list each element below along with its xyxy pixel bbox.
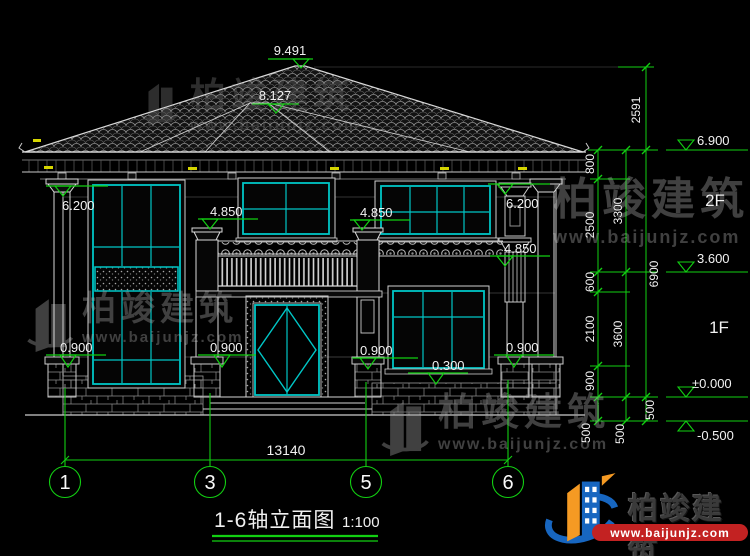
drawing-title: 1-6轴立面图 1:100 xyxy=(212,509,380,541)
dim-500-b: 500 xyxy=(613,424,627,444)
dim-6900: 6900 xyxy=(647,260,661,287)
company-site-banner: www.baijunjz.com xyxy=(592,524,748,541)
ridge-level: 9.491 xyxy=(274,43,307,58)
eave-tip-left xyxy=(19,143,25,152)
level-zero: ±0.000 xyxy=(692,376,732,391)
window-2f-center xyxy=(236,178,337,242)
drawing-canvas[interactable]: 9.491 8.127 6.200 6.200 4.850 4.850 4.85… xyxy=(0,0,750,556)
level-base-3: 0.900 xyxy=(360,343,393,358)
eave-tip-right xyxy=(583,143,589,152)
balustrade xyxy=(220,258,355,286)
dim-800: 800 xyxy=(583,154,597,174)
title-text: 1-6轴立面图 xyxy=(214,509,335,532)
level-ground: -0.500 xyxy=(697,428,734,443)
facade xyxy=(25,178,585,415)
floor-label-1f: 1F xyxy=(709,318,729,337)
dim-3300: 3300 xyxy=(611,197,625,224)
overall-dimension: 13140 xyxy=(267,442,306,458)
dim-2500: 2500 xyxy=(583,211,597,238)
dim-3600: 3600 xyxy=(611,320,625,347)
level-balcony-right: 4.850 xyxy=(504,241,537,256)
dim-500-c: 500 xyxy=(643,400,657,420)
dim-500-a: 500 xyxy=(579,423,593,443)
dim-2100: 2100 xyxy=(583,315,597,342)
dim-2591: 2591 xyxy=(629,96,643,123)
axis-bubble-3: 3 xyxy=(204,472,215,494)
company-logo: 柏竣建筑 www.baijunjz.com xyxy=(540,468,748,552)
window-spandrel xyxy=(95,267,178,291)
dim-900: 900 xyxy=(583,371,597,391)
dim-600: 600 xyxy=(583,272,597,292)
entry-steps xyxy=(203,397,372,409)
axis-bubble-5: 5 xyxy=(360,472,371,494)
level-base-4: 0.900 xyxy=(506,340,539,355)
level-floor2: 3.600 xyxy=(697,251,730,266)
level-sill: 0.300 xyxy=(432,358,465,373)
porch-ridge-level: 8.127 xyxy=(259,88,292,103)
axis-bubble-6: 6 xyxy=(502,472,513,494)
entry-door xyxy=(246,296,328,397)
title-scale: 1:100 xyxy=(342,514,380,531)
company-name: 柏竣建筑 xyxy=(628,484,748,556)
level-balcony-mid: 4.850 xyxy=(360,205,393,220)
window-stairwell xyxy=(88,180,185,388)
level-eave: 6.900 xyxy=(697,133,730,148)
axis-bubble-1: 1 xyxy=(59,472,70,494)
level-base-2: 0.900 xyxy=(210,340,243,355)
floor-label-2f: 2F xyxy=(705,191,725,210)
wall-niche xyxy=(361,300,374,333)
company-site: www.baijunjz.com xyxy=(610,526,730,540)
level-eave-right: 6.200 xyxy=(506,196,539,211)
level-base-1: 0.900 xyxy=(60,340,93,355)
roof xyxy=(25,66,644,152)
right-dimensions: 800 2500 600 2100 900 500 3300 3600 500 … xyxy=(579,63,748,444)
level-balcony-left: 4.850 xyxy=(210,204,243,219)
level-eave-left: 6.200 xyxy=(62,198,95,213)
